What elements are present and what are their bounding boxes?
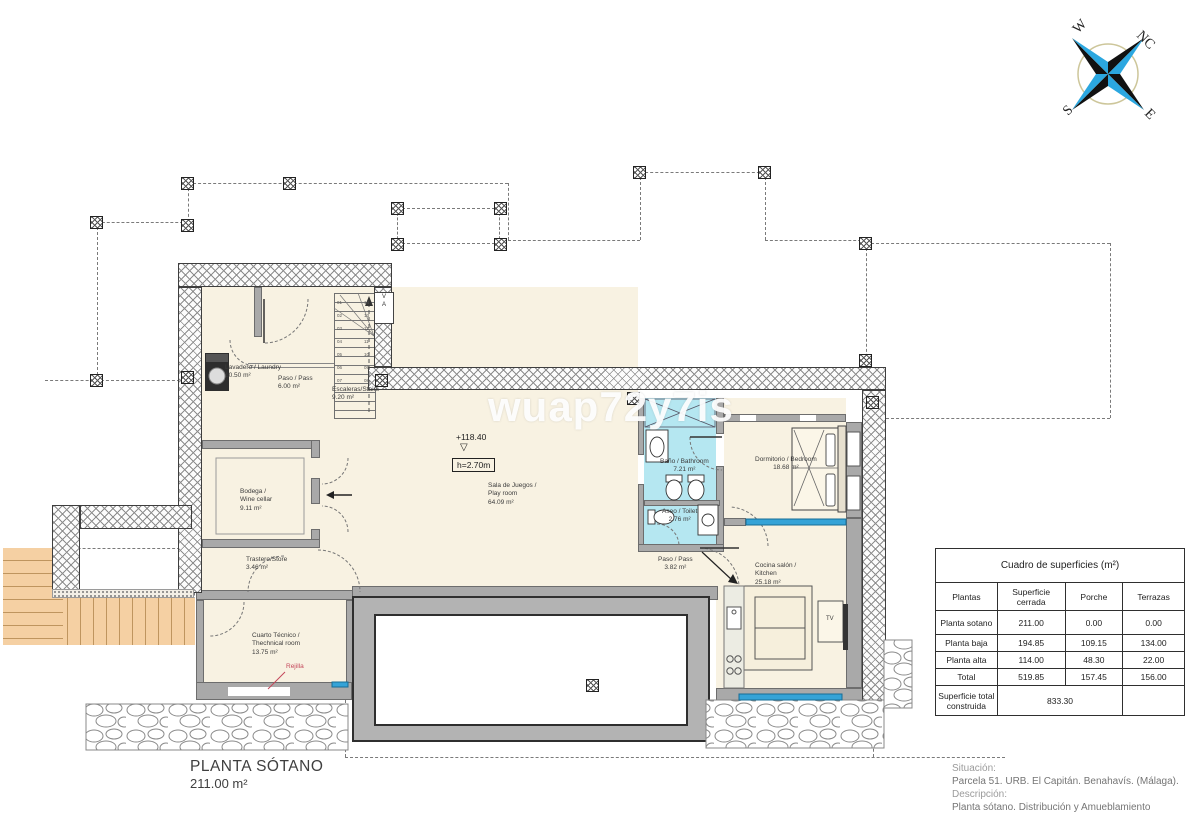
partition-wall [716, 688, 886, 708]
partition-wall [196, 590, 356, 600]
step-number: 10 [364, 348, 369, 361]
column-marker [859, 237, 872, 250]
room-name: Lavadero / Laundry [225, 364, 281, 372]
column-marker [494, 202, 507, 215]
surfaces-table: Cuadro de superficies (m²) Plantas Super… [935, 548, 1185, 716]
table-cell: Planta sotano [936, 611, 998, 635]
descripcion-value: Planta sótano. Distribución y Amueblamie… [952, 801, 1179, 814]
room-name: Play room [488, 490, 536, 498]
projection-line [866, 243, 867, 372]
descripcion-label: Descripción: [952, 788, 1179, 801]
table-cell: 0.00 [1123, 611, 1185, 635]
compass-icon: W NC S E [1052, 18, 1172, 122]
ventilation-shaft: V A [374, 292, 394, 324]
room-area: 25.18 m² [755, 579, 796, 587]
partition-wall [202, 539, 320, 548]
room-name: Thechnical room [252, 640, 300, 648]
table-cell: 134.00 [1123, 635, 1185, 652]
table-header: Superficie cerrada [997, 583, 1065, 611]
step-number: 09 [364, 361, 369, 374]
ceiling-height-mark: h=2.70m [452, 458, 495, 472]
compass-label-e: E [1141, 106, 1158, 122]
room-area: 10.50 m² [225, 372, 281, 380]
projection-line [886, 418, 1110, 419]
room-area: 6.00 m² [278, 383, 313, 391]
level-symbol: ▽ [460, 442, 468, 453]
step-number: 04 [337, 335, 342, 348]
column-marker [866, 396, 879, 409]
exterior-wall [178, 287, 202, 593]
table-cell: 194.85 [997, 635, 1065, 652]
table-cell: 157.45 [1065, 669, 1123, 686]
exterior-wall [862, 390, 886, 708]
projection-line [640, 172, 765, 173]
projection-line [866, 243, 1110, 244]
column-marker [758, 166, 771, 179]
partition-wall [202, 440, 320, 449]
table-cell: 156.00 [1123, 669, 1185, 686]
room-area: 7.21 m² [660, 466, 709, 474]
room-area: 3.46 m² [246, 564, 287, 572]
projection-line [1110, 243, 1111, 418]
room-label-store: Trastero/Store 3.46 m² [246, 556, 287, 573]
tv-label: TV [826, 616, 834, 624]
table-row: Planta alta 114.00 48.30 22.00 [936, 652, 1185, 669]
situacion-value: Parcela 51. URB. El Capitán. Benahavís. … [952, 775, 1179, 788]
room-name: Paso / Pass [278, 375, 313, 383]
compass-label-w: W [1070, 18, 1091, 37]
table-row: Planta baja 194.85 109.15 134.00 [936, 635, 1185, 652]
projection-line [97, 222, 98, 380]
project-info: Situación: Parcela 51. URB. El Capitán. … [952, 762, 1179, 814]
column-marker [283, 177, 296, 190]
column-marker [391, 202, 404, 215]
projection-line [765, 172, 766, 240]
room-label-bedroom: Dormitorio / Bedroom 18.68 m² [755, 456, 817, 473]
room-name: Sala de Juegos / [488, 482, 536, 490]
table-cell: 833.30 [997, 686, 1122, 716]
room-area: 9.20 m² [332, 394, 379, 402]
room-name: Cocina salón / [755, 562, 796, 570]
projection-line [873, 712, 874, 757]
column-marker [859, 354, 872, 367]
room-label-laundry: Lavadero / Laundry 10.50 m² [225, 364, 281, 381]
window-opening [800, 415, 816, 421]
room-name: Dormitorio / Bedroom [755, 456, 817, 464]
table-cell: 109.15 [1065, 635, 1123, 652]
room-area: 13.75 m² [252, 649, 300, 657]
column-marker [90, 374, 103, 387]
column-marker [90, 216, 103, 229]
gravel-strip [52, 589, 194, 598]
room-name: Escaleras/Stairs [332, 386, 379, 394]
room-name: Aseo / Toilet [662, 508, 697, 516]
table-row: Total 519.85 157.45 156.00 [936, 669, 1185, 686]
table-footer-row: Superficie total construida 833.30 [936, 686, 1185, 716]
room-label-kitchen: Cocina salón / Kitchen 25.18 m² [755, 562, 796, 587]
sheet-area: 211.00 m² [190, 776, 248, 791]
partition-wall [716, 466, 724, 546]
column-marker [586, 679, 599, 692]
projection-line [508, 183, 509, 240]
projection-line [345, 700, 346, 757]
room-name: Bodega / [240, 488, 272, 496]
partition-wall [638, 544, 724, 552]
table-cell: 211.00 [997, 611, 1065, 635]
room-name: Wine cellar [240, 496, 272, 504]
room-area: 18.68 m² [755, 464, 817, 472]
room-label-stairs: Escaleras/Stairs 9.20 m² [332, 386, 379, 403]
partition-wall [644, 500, 720, 506]
column-marker [391, 238, 404, 251]
partition-wall [846, 518, 862, 688]
partition-wall [254, 287, 262, 337]
projection-line [188, 183, 508, 184]
room-label-toilet: Aseo / Toilet 2.76 m² [662, 508, 697, 525]
column-marker [181, 371, 194, 384]
step-number: 06 [337, 361, 342, 374]
projection-line [97, 222, 188, 223]
partition-wall [311, 478, 320, 504]
compass-label-n: NC [1133, 28, 1157, 52]
stair-step-numbers: 01 02 03 04 05 06 07 [337, 296, 342, 387]
shaft-letter-v: V [375, 293, 393, 301]
pool-basin [374, 614, 688, 726]
room-name: Cuarto Técnico / [252, 632, 300, 640]
step-number: 01 [337, 296, 342, 309]
table-cell: Superficie total construida [936, 686, 998, 716]
table-cell: Planta baja [936, 635, 998, 652]
step-number: 03 [337, 322, 342, 335]
column-marker [181, 177, 194, 190]
room-name: Trastero/Store [246, 556, 287, 564]
exterior-wall [178, 263, 392, 287]
room-label-pass1: Paso / Pass 6.00 m² [278, 375, 313, 392]
room-name: Kitchen [755, 570, 796, 578]
stone-band [884, 640, 912, 708]
stair-step-numbers: 14 13 12 11 10 09 08 [364, 296, 369, 387]
projection-line [345, 757, 1005, 758]
projection-line [508, 240, 640, 241]
room-label-technical: Cuarto Técnico / Thechnical room 13.75 m… [252, 632, 300, 657]
situacion-label: Situación: [952, 762, 1179, 775]
table-cell: 519.85 [997, 669, 1065, 686]
step-number: 05 [337, 348, 342, 361]
step-number: 12 [364, 322, 369, 335]
floor-plan-sheet: { "watermark": "wuap72y7is", "compass": … [0, 0, 1200, 817]
table-header: Plantas [936, 583, 998, 611]
room-label-bathroom: Baño / Bathroom 7.21 m² [660, 458, 709, 475]
table-header: Terrazas [1123, 583, 1185, 611]
grille-label: Rejilla [286, 663, 304, 671]
column-marker [494, 238, 507, 251]
table-row: Planta sotano 211.00 0.00 0.00 [936, 611, 1185, 635]
stone-band [86, 704, 348, 750]
room-area: 2.76 m² [662, 516, 697, 524]
partition-wall [846, 422, 862, 518]
table-cell: Planta alta [936, 652, 998, 669]
projection-line [640, 172, 641, 240]
room-name: Baño / Bathroom [660, 458, 709, 466]
grille-opening [228, 687, 290, 696]
watermark: wuap72y7is [488, 383, 734, 431]
projection-line [45, 380, 180, 381]
table-header: Porche [1065, 583, 1123, 611]
table-cell-empty [1123, 686, 1185, 716]
table-cell: 0.00 [1065, 611, 1123, 635]
table-cell: 114.00 [997, 652, 1065, 669]
step-number: 14 [364, 296, 369, 309]
sheet-title: PLANTA SÓTANO [190, 758, 323, 776]
room-area: 9.11 m² [240, 505, 272, 513]
table-title: Cuadro de superficies (m²) [936, 549, 1185, 583]
compass-label-s: S [1060, 103, 1076, 119]
room-label-pass2: Paso / Pass 3.82 m² [658, 556, 693, 573]
level-mark: +118.40 [456, 432, 486, 442]
projection-line [765, 240, 866, 241]
retaining-wall [80, 505, 192, 529]
partition-wall [724, 518, 746, 526]
room-area: 64.09 m² [488, 499, 536, 507]
compass-star [1072, 38, 1144, 110]
room-label-playroom: Sala de Juegos / Play room 64.09 m² [488, 482, 536, 507]
window-opening [740, 415, 756, 421]
projection-outline [397, 208, 500, 244]
retaining-wall [52, 505, 80, 591]
column-marker [181, 219, 194, 232]
partition-wall [311, 440, 320, 458]
step-number: 13 [364, 309, 369, 322]
table-cell: Total [936, 669, 998, 686]
step-number: 11 [364, 335, 369, 348]
shaft-letter-a: A [375, 301, 393, 309]
room-fill-kitchen [716, 518, 846, 688]
room-area: 3.82 m² [658, 564, 693, 572]
column-marker [633, 166, 646, 179]
step-number: 02 [337, 309, 342, 322]
partition-wall [638, 484, 644, 552]
room-label-wine-cellar: Bodega / Wine cellar 9.11 m² [240, 488, 272, 513]
room-name: Paso / Pass [658, 556, 693, 564]
table-cell: 48.30 [1065, 652, 1123, 669]
table-cell: 22.00 [1123, 652, 1185, 669]
